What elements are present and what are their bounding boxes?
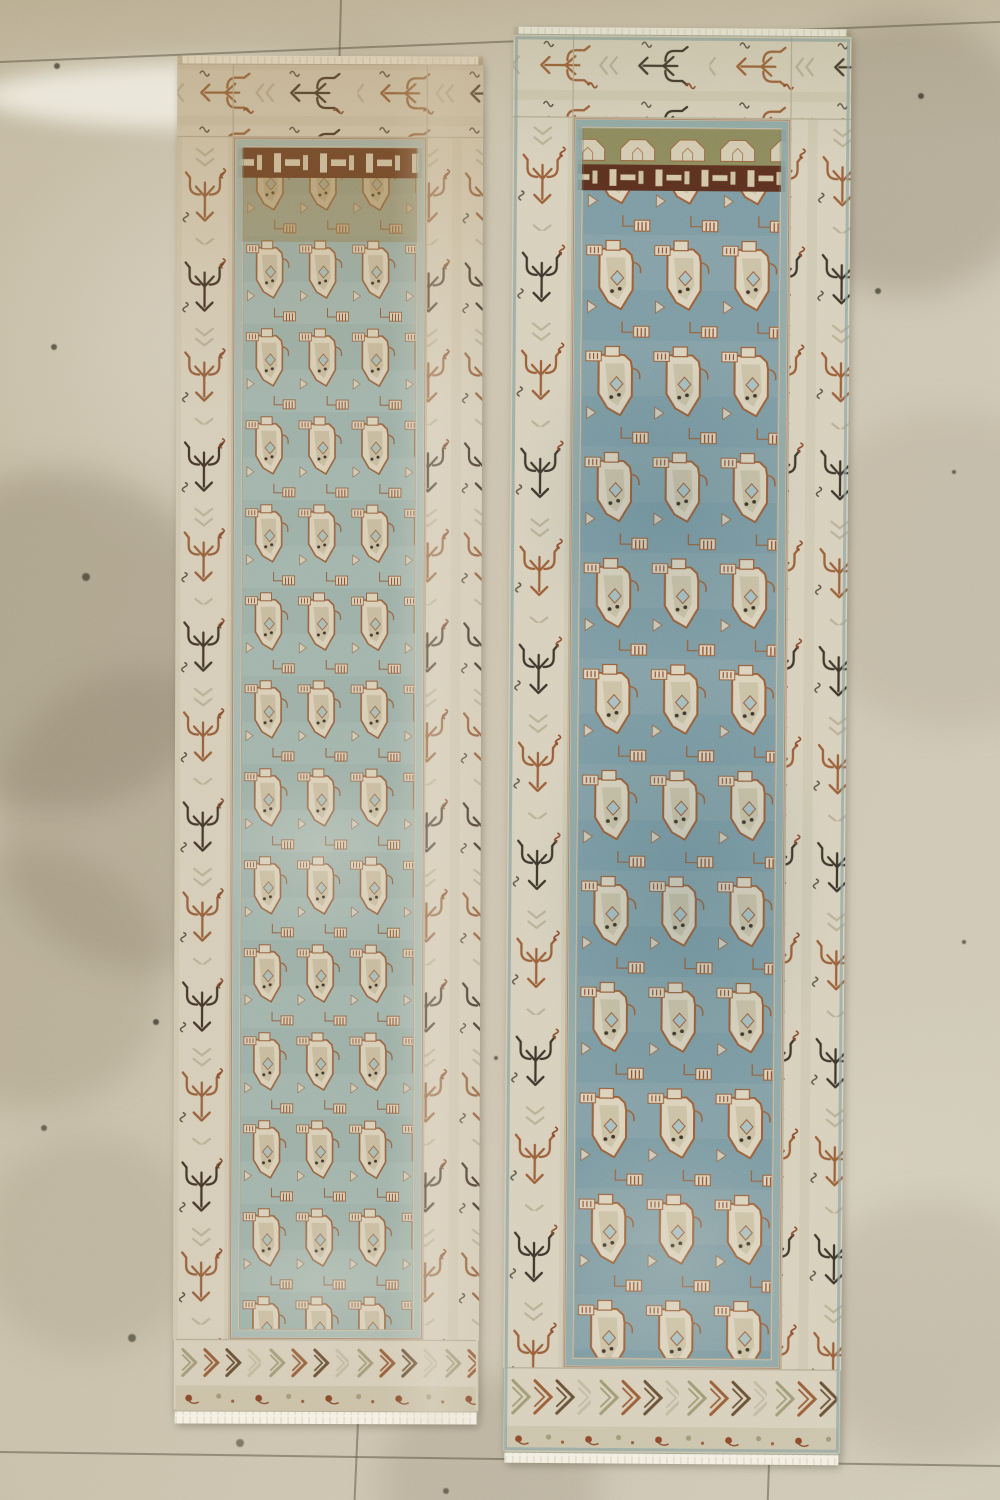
rug-border-top xyxy=(177,64,483,137)
rug-border-right xyxy=(423,65,483,1340)
floor-speck xyxy=(236,1439,244,1447)
floor-speck xyxy=(494,1056,498,1060)
floor-speck xyxy=(962,940,966,944)
floor-speck xyxy=(443,1488,449,1494)
floor-speck xyxy=(128,1334,136,1342)
floor-speck xyxy=(153,1019,159,1025)
rug-top-band-brown xyxy=(238,148,422,179)
floor-speck xyxy=(41,1125,47,1131)
rug-top-band-brown xyxy=(577,164,785,192)
rug-border-top xyxy=(513,35,852,120)
floor-speck xyxy=(82,573,90,581)
rug-right-runner xyxy=(502,27,851,1466)
floor-speck xyxy=(54,63,60,69)
rug-field-boteh-pattern xyxy=(574,128,780,1359)
photo-scene xyxy=(0,0,1000,1500)
rug-border-left xyxy=(173,64,233,1339)
rug-end-band-zigzag xyxy=(176,1339,476,1386)
rug-end-band-zigzag xyxy=(506,1368,838,1429)
rug-right-runner-art xyxy=(502,27,851,1466)
floor-speck xyxy=(918,93,924,99)
floor-speck xyxy=(51,344,57,350)
floor-speck xyxy=(952,470,956,474)
floor-speck xyxy=(875,288,881,294)
rug-left-runner-art xyxy=(173,55,484,1424)
rug-field-boteh-pattern xyxy=(240,148,416,1330)
rug-left-runner xyxy=(173,55,484,1424)
rug-end-band-dots xyxy=(176,1385,476,1411)
rug-top-panel-wash xyxy=(238,178,422,243)
rug-top-panel-olive xyxy=(578,128,786,166)
